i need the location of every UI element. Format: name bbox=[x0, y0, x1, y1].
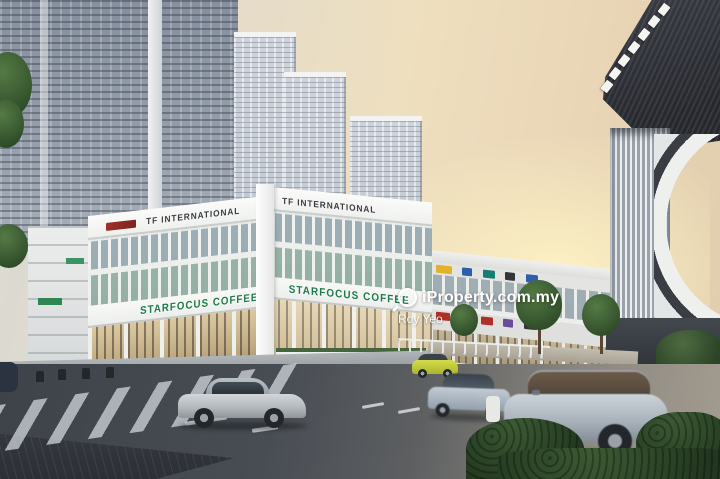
cafe-chair-silhouette bbox=[82, 368, 90, 379]
shop-sign-blue bbox=[462, 267, 472, 276]
iproperty-logo-icon: ⌂ bbox=[398, 288, 417, 307]
street-tree bbox=[582, 294, 620, 336]
watermark: ⌂ iProperty.com.my Roy Yeo bbox=[398, 288, 559, 326]
shop-sign-yellow bbox=[436, 265, 452, 275]
parapet-red-sign bbox=[106, 220, 136, 231]
sedan-windows bbox=[212, 382, 264, 394]
annex-green-sign bbox=[38, 298, 62, 305]
white-car-sliver bbox=[486, 396, 500, 422]
car-edge-left bbox=[0, 362, 18, 392]
suv-mirror bbox=[532, 390, 540, 395]
foreground-hedge bbox=[498, 448, 720, 479]
wheel bbox=[194, 408, 214, 428]
rooftop-sign-right: TF INTERNATIONAL bbox=[282, 196, 376, 215]
shop-sign-dark bbox=[505, 272, 515, 281]
watermark-agent-name: Roy Yeo bbox=[398, 312, 559, 326]
wheel bbox=[264, 408, 284, 428]
corner-column bbox=[256, 184, 274, 364]
cafe-chair-silhouette bbox=[58, 369, 66, 380]
property-rendering-photo: TF INTERNATIONAL STARFOCUS COFFEE TF INT… bbox=[0, 0, 720, 479]
house-glyph: ⌂ bbox=[404, 293, 410, 303]
cafe-chair-silhouette bbox=[106, 367, 114, 378]
shop-sign-teal bbox=[483, 270, 495, 279]
watermark-brand: iProperty.com.my bbox=[422, 289, 559, 307]
annex-green-sign bbox=[66, 258, 84, 264]
tower-facade-stripe bbox=[40, 0, 48, 252]
cafe-chair-silhouette bbox=[36, 371, 44, 382]
wheel bbox=[418, 369, 427, 378]
silver-sedan bbox=[178, 376, 306, 432]
